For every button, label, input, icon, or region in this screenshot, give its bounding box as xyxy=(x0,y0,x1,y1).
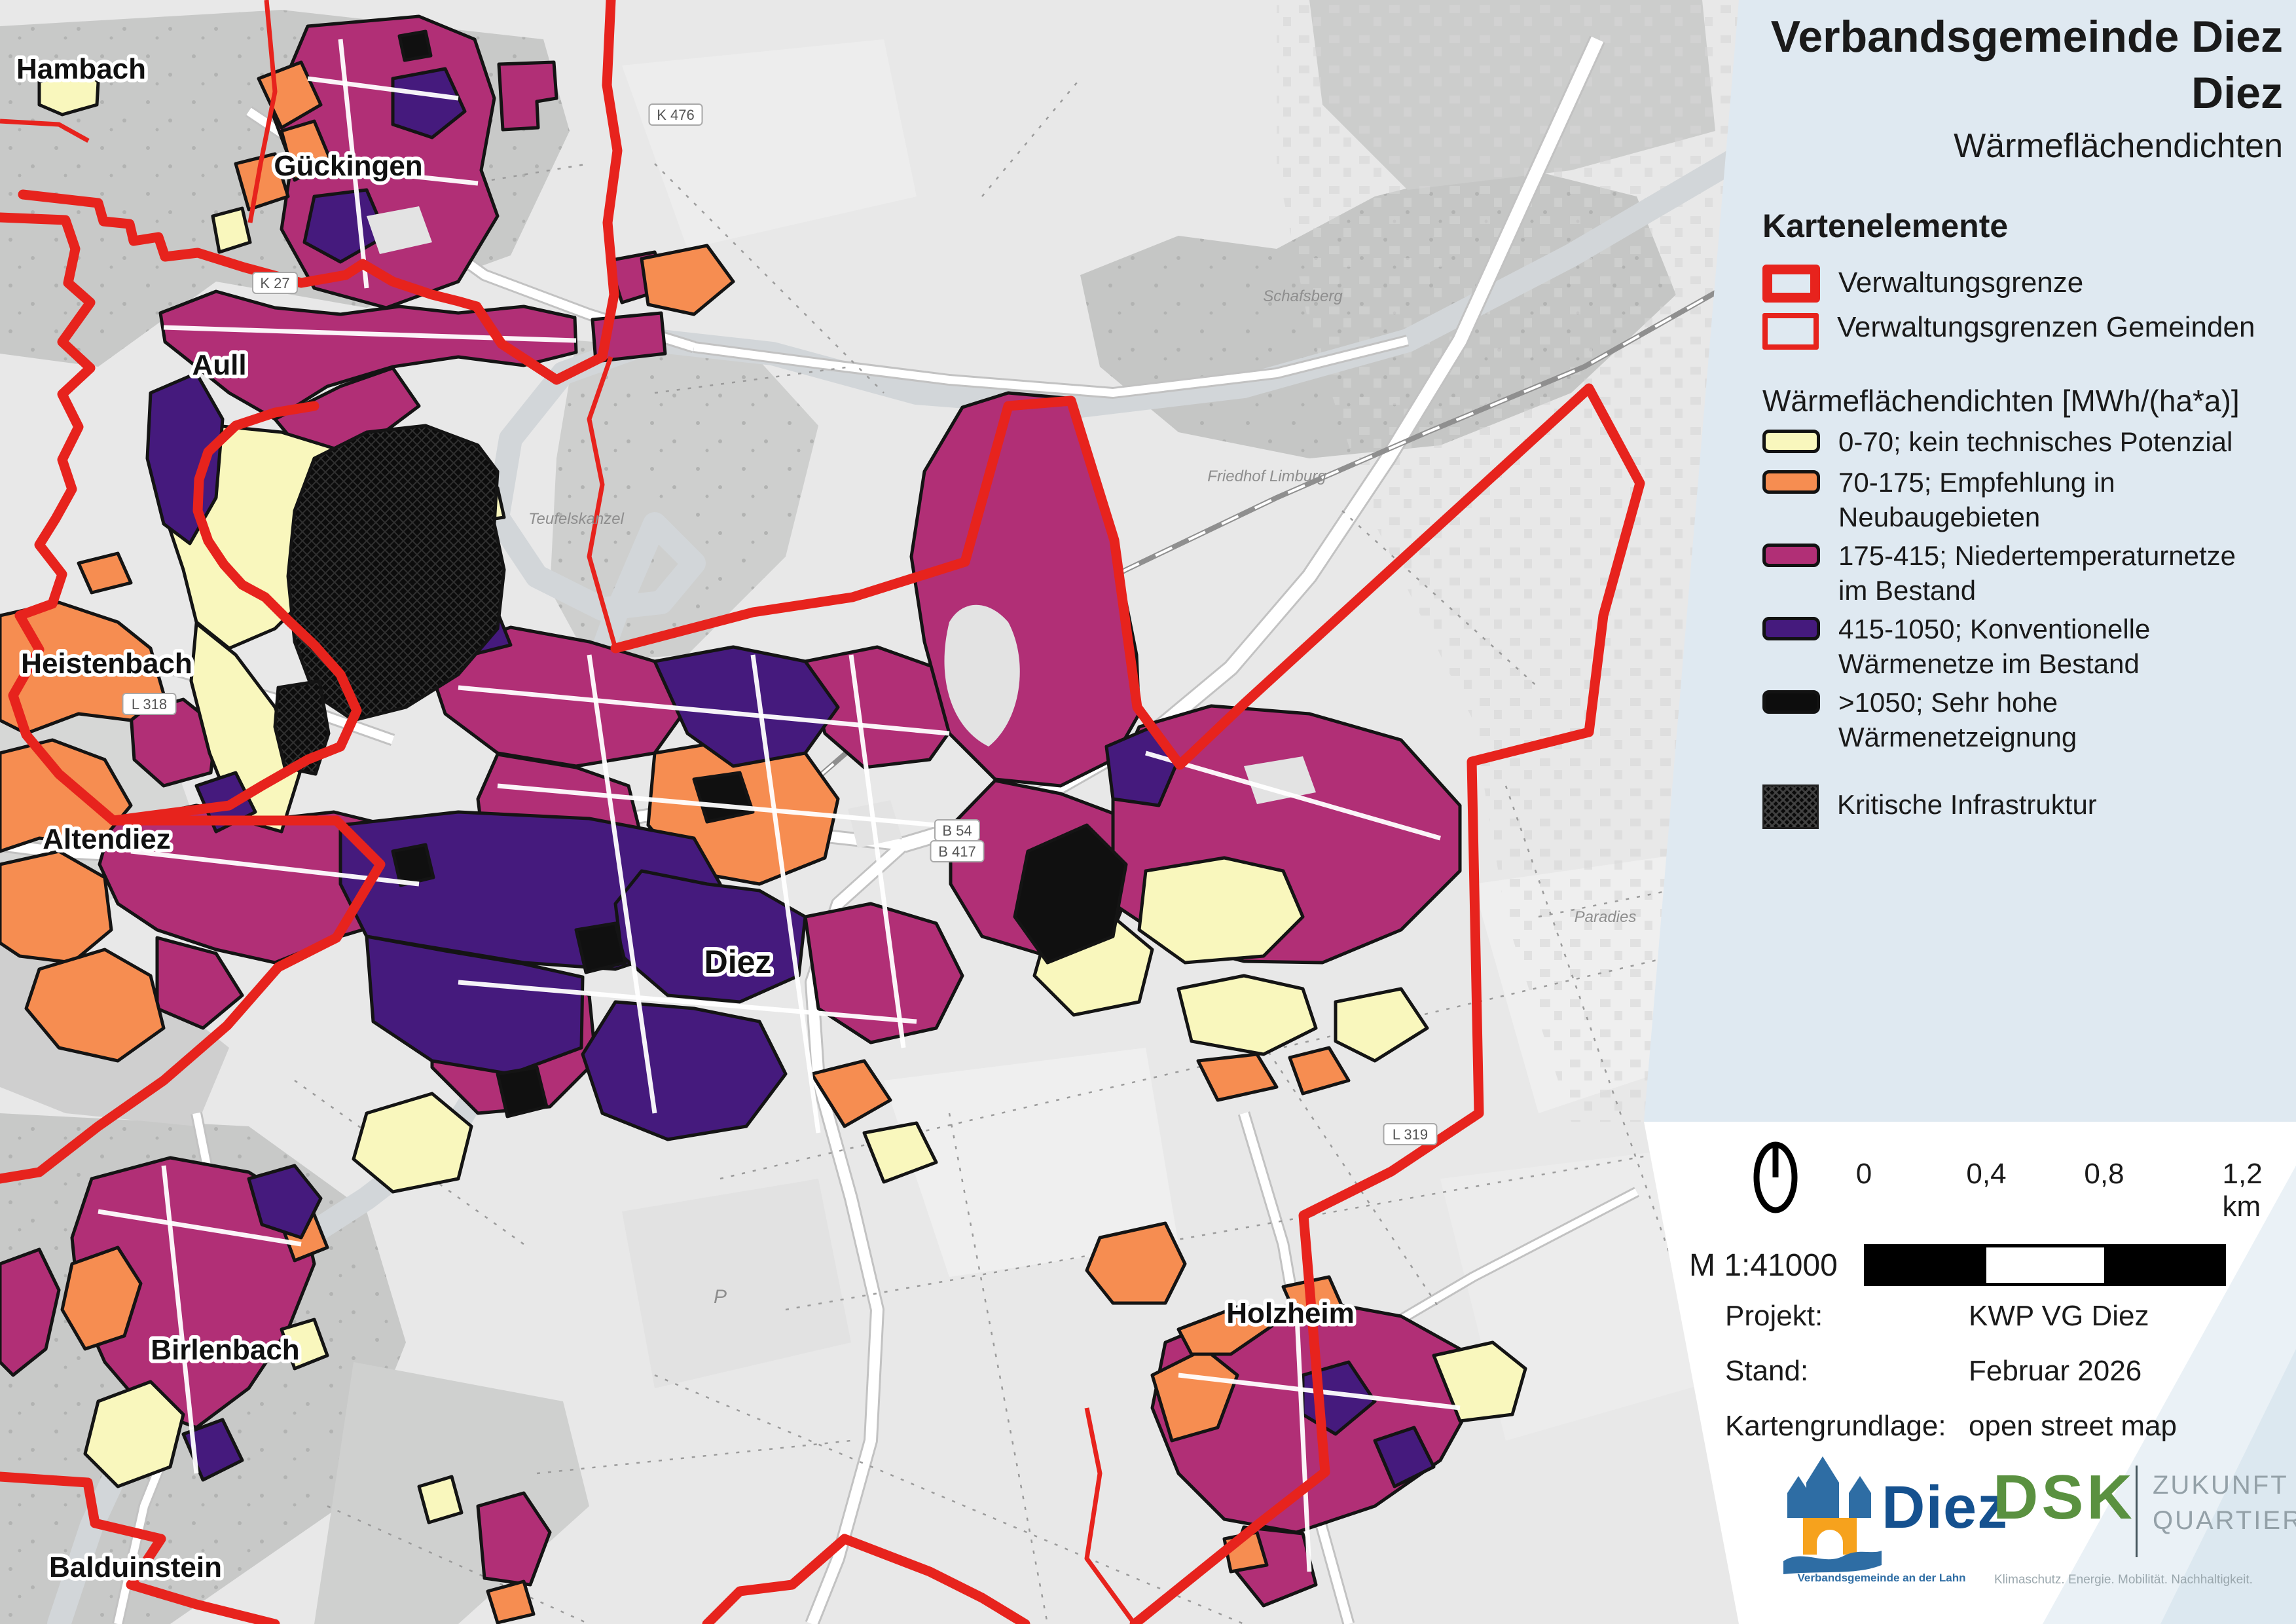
scale-tick-0: 0 xyxy=(1856,1158,1872,1190)
north-arrow-icon xyxy=(1749,1138,1802,1217)
town-label-gückingen: Gückingen xyxy=(274,150,422,182)
boundary-swatch-thick xyxy=(1762,265,1820,303)
town-label-altendiez: Altendiez xyxy=(43,823,171,855)
scale-ratio: M 1:41000 xyxy=(1689,1247,1838,1283)
road-shield-label: B 417 xyxy=(938,843,976,860)
legend-item-label: Verwaltungsgrenze xyxy=(1838,265,2270,301)
project-label: Projekt: xyxy=(1725,1300,1823,1333)
town-label-hambach: Hambach xyxy=(16,53,146,85)
road-shield-label: L 318 xyxy=(132,696,167,712)
density-swatch-black xyxy=(1762,690,1820,714)
legend-item-1050plus: >1050; Sehr hohe Wärmenetzeignung xyxy=(1762,685,2270,754)
heat-region-black xyxy=(576,923,625,972)
scale-bar-middle-segment xyxy=(1986,1247,2104,1283)
heat-region-black xyxy=(498,1067,547,1116)
town-label-balduinstein: Balduinstein xyxy=(49,1551,222,1583)
scale-tick-2: 0,8 xyxy=(2084,1158,2124,1190)
title-subtitle: Wärmeflächendichten xyxy=(1771,125,2283,168)
kartengrundlage-label: Kartengrundlage: xyxy=(1725,1410,1946,1443)
scale-bar xyxy=(1864,1244,2226,1286)
boundary-swatch-thin xyxy=(1762,313,1819,350)
road-shield-label: B 54 xyxy=(942,822,972,839)
dsk-logo-word2: QUARTIER xyxy=(2153,1506,2296,1536)
heat-region-yellow xyxy=(419,1477,462,1522)
road-shield-label: K 476 xyxy=(657,107,695,123)
legend-item-label: 0-70; kein technisches Potenzial xyxy=(1838,424,2270,459)
legend-item-verwaltungsgrenze: Verwaltungsgrenze xyxy=(1762,265,2270,303)
stand-value: Februar 2026 xyxy=(1969,1355,2141,1388)
legend-item-0-70: 0-70; kein technisches Potenzial xyxy=(1762,424,2270,459)
legend-heading: Kartenelemente xyxy=(1762,207,2008,245)
road-shield-label: L 319 xyxy=(1393,1126,1428,1143)
dsk-logo-word1: ZUKUNFT xyxy=(2153,1471,2289,1500)
stand-label: Stand: xyxy=(1725,1355,1808,1388)
project-value: KWP VG Diez xyxy=(1969,1300,2149,1333)
legend-item-label: >1050; Sehr hohe Wärmenetzeignung xyxy=(1838,685,2270,754)
dsk-logo-tagline: Klimaschutz. Energie. Mobilität. Nachhal… xyxy=(1994,1573,2282,1587)
density-swatch-magenta xyxy=(1762,544,1820,567)
legend-item-175-415: 175-415; Niedertemperaturnetze im Bestan… xyxy=(1762,538,2270,608)
legend-item-kritische-infrastruktur: Kritische Infrastruktur xyxy=(1762,784,2269,829)
scale-tick-1: 0,4 xyxy=(1966,1158,2006,1190)
legend-item-label: Verwaltungsgrenzen Gemeinden xyxy=(1837,309,2269,346)
minor-map-label: Friedhof Limburg xyxy=(1207,468,1326,485)
minor-map-label: Schafsberg xyxy=(1263,287,1343,305)
title-line-2: Diez xyxy=(1771,65,2283,122)
legend-item-415-1050: 415-1050; Konventionelle Wärmenetze im B… xyxy=(1762,612,2270,681)
town-label-diez: Diez xyxy=(704,944,772,980)
kartengrundlage-value: open street map xyxy=(1969,1410,2177,1443)
diez-logo-tagline: Verbandsgemeinde an der Lahn xyxy=(1770,1572,1993,1585)
diez-logo-name: Diez xyxy=(1882,1473,2008,1542)
minor-map-label: Paradies xyxy=(1575,908,1637,926)
legend-item-verwaltungsgrenzen-gemeinden: Verwaltungsgrenzen Gemeinden xyxy=(1762,309,2269,350)
heat-region-black xyxy=(399,31,431,60)
scale-tick-3: 1,2 km xyxy=(2223,1158,2272,1223)
legend-item-label: 70-175; Empfehlung in Neubaugebieten xyxy=(1838,465,2270,534)
legend-item-70-175: 70-175; Empfehlung in Neubaugebieten xyxy=(1762,465,2270,534)
dsk-logo-name: DSK xyxy=(1993,1462,2136,1534)
town-label-heistenbach: Heistenbach xyxy=(21,648,192,680)
diez-castle-icon xyxy=(1783,1455,1882,1586)
minor-map-label: Teufelskanzel xyxy=(528,510,625,528)
diez-logo: Diez Verbandsgemeinde an der Lahn xyxy=(1783,1455,1980,1593)
heat-region-black xyxy=(393,845,433,885)
town-label-holzheim: Holzheim xyxy=(1226,1297,1355,1329)
title-line-1: Verbandsgemeinde Diez xyxy=(1771,9,2283,65)
dsk-logo: DSK ZUKUNFT QUARTIER Klimaschutz. Energi… xyxy=(1993,1466,2281,1596)
map-sheet: K 27L 318K 476B 54B 417L 319 SchafsbergF… xyxy=(0,0,2296,1624)
density-swatch-orange xyxy=(1762,470,1820,494)
density-swatch-yellow xyxy=(1762,430,1820,453)
dsk-logo-divider xyxy=(2136,1466,2138,1557)
legend-item-label: Kritische Infrastruktur xyxy=(1837,784,2269,825)
road-shield-label: K 27 xyxy=(260,275,289,291)
density-heading: Wärmeflächendichten [MWh/(ha*a)] xyxy=(1762,383,2240,418)
town-label-birlenbach: Birlenbach xyxy=(151,1334,299,1366)
town-label-aull: Aull xyxy=(192,349,246,381)
density-swatch-purple xyxy=(1762,617,1820,640)
map-title-block: Verbandsgemeinde Diez Diez Wärmeflächend… xyxy=(1771,9,2283,168)
minor-map-label: P xyxy=(714,1286,727,1308)
legend-item-label: 415-1050; Konventionelle Wärmenetze im B… xyxy=(1838,612,2270,681)
infrastructure-swatch xyxy=(1762,784,1819,829)
legend-item-label: 175-415; Niedertemperaturnetze im Bestan… xyxy=(1838,538,2270,608)
heat-region-yellow xyxy=(213,208,250,252)
